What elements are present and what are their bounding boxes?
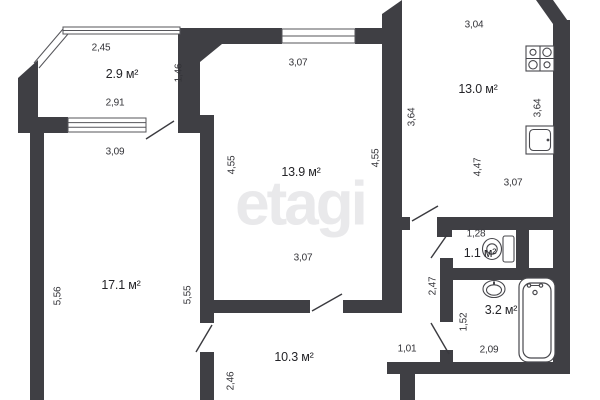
balcony-dim-bottom: 2,91 — [106, 98, 125, 109]
hallway-dim-bottom: 1,01 — [398, 344, 417, 355]
bathtub-icon — [519, 278, 555, 362]
balcony-dim-right: 1,46 — [174, 64, 185, 83]
hallway-area-label: 10.3 м² — [274, 350, 313, 364]
kitchen-dim-inner: 4,47 — [473, 158, 484, 177]
balcony-area-label: 2.9 м² — [106, 67, 138, 81]
bedroom-area-label: 13.9 м² — [281, 165, 320, 179]
washbasin-icon — [483, 281, 505, 298]
living-dim-right: 5,55 — [183, 286, 194, 305]
bedroom-door — [312, 294, 342, 311]
bathroom-dim-left: 1,52 — [459, 313, 470, 332]
bedroom-dim-bottom: 3,07 — [294, 253, 313, 264]
stove-icon — [526, 46, 554, 71]
living-window-dim: 3,09 — [106, 147, 125, 158]
living-door — [196, 325, 212, 352]
bathroom-door — [431, 323, 449, 354]
doors — [146, 121, 449, 354]
kitchen-area-label: 13.0 м² — [458, 82, 497, 96]
bedroom-dim-right: 4,55 — [371, 149, 382, 168]
wc-door — [431, 235, 447, 258]
kitchen-dim-top: 3,04 — [465, 20, 484, 31]
living-dim-left: 5,56 — [53, 287, 64, 306]
kitchen-door — [412, 206, 438, 221]
living-door-dim: 2,46 — [226, 372, 237, 391]
bedroom-window — [282, 29, 355, 43]
living-area-label: 17.1 м² — [101, 278, 140, 292]
balcony-door — [146, 121, 174, 139]
bathroom-area-label: 3.2 м² — [485, 303, 517, 317]
kitchen-dim-left: 3,64 — [407, 108, 418, 127]
kitchen-dim-right: 3,64 — [533, 99, 544, 118]
living-window — [68, 118, 146, 132]
bathroom-dim-bottom: 2,09 — [480, 345, 499, 356]
wc-area-label: 1.1 м² — [464, 246, 496, 260]
kitchen-sink-icon — [526, 126, 554, 154]
balcony-dim-top: 2,45 — [92, 43, 111, 54]
kitchen-dim-bottom: 3,07 — [504, 178, 523, 189]
bedroom-dim-top: 3,07 — [289, 58, 308, 69]
floor-plan: etagi — [0, 0, 600, 400]
bedroom-dim-left: 4,55 — [227, 156, 238, 175]
hallway-dim-right: 2,47 — [428, 277, 439, 296]
wc-dim-top: 1,28 — [467, 229, 486, 240]
